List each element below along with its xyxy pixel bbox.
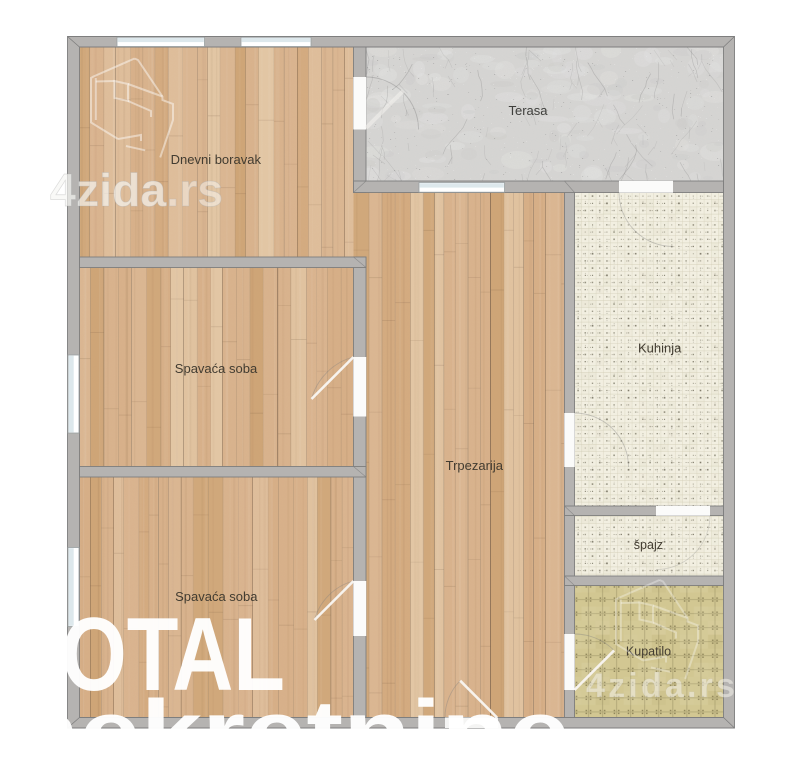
svg-text:4zida.rs: 4zida.rs	[50, 164, 223, 216]
svg-text:4zida.rs: 4zida.rs	[586, 667, 738, 705]
svg-text:nekretnine: nekretnine	[12, 682, 570, 768]
svg-text:Trpezarija: Trpezarija	[446, 458, 504, 473]
svg-text:špajz: špajz	[634, 538, 663, 552]
svg-text:Terasa: Terasa	[508, 103, 548, 118]
svg-text:Spavaća soba: Spavaća soba	[175, 361, 258, 376]
svg-text:Kuhinja: Kuhinja	[638, 340, 682, 355]
